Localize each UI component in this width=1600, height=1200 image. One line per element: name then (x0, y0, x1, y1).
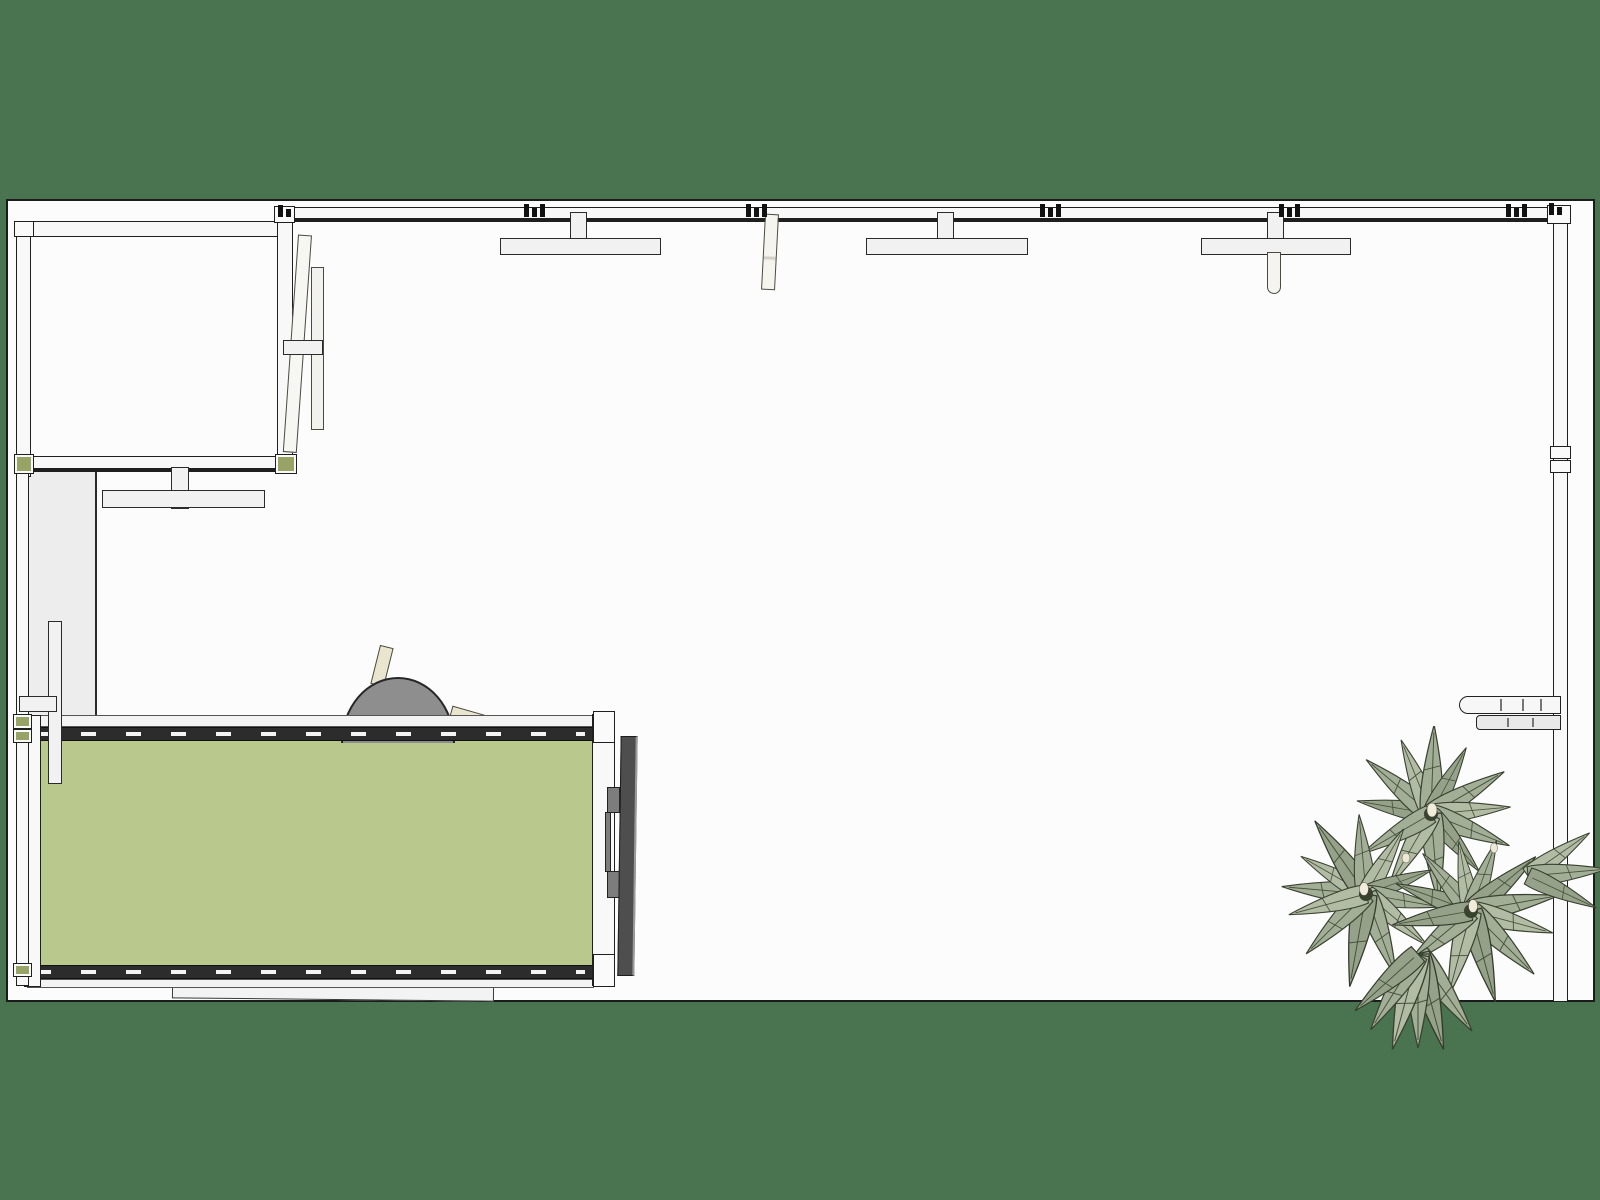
top-wall (277, 207, 1569, 222)
track-hardware-5 (1506, 204, 1532, 217)
corner-block-room-top-left (14, 221, 34, 237)
left-crossbar-fixture (19, 696, 57, 712)
olive-accent (16, 717, 29, 726)
panel-fixture-4-bar (102, 490, 265, 508)
living-wall-corner-block-bottom (593, 954, 615, 987)
corner-block-room-bottom-left (14, 454, 34, 474)
shelf-hatch (1522, 699, 1524, 711)
track-hardware-3 (1040, 204, 1066, 217)
olive-accent (16, 966, 29, 974)
track-hardware-4 (1279, 204, 1305, 217)
living-wall-bottom-rail-cap (27, 979, 594, 988)
agave-plant (1266, 726, 1600, 1050)
olive-accent (16, 732, 29, 740)
track-hardware-2 (746, 204, 772, 217)
living-wall-right-post (592, 714, 615, 986)
corner-block-room-bottom-right (275, 454, 297, 474)
track-dashes (36, 970, 585, 974)
entry-room-left-wall (16, 221, 31, 477)
living-wall-top-track (27, 727, 594, 741)
corridor (29, 472, 97, 718)
track-hardware-corner (1549, 203, 1567, 215)
track-hardware-junction (278, 205, 296, 217)
panel-fixture-2-bar (866, 238, 1028, 255)
shelf-slat-upper (1459, 696, 1561, 714)
shelf-hatch (1540, 699, 1542, 711)
entry-room-bottom-wall (16, 456, 293, 472)
mounted-screen (617, 736, 637, 976)
living-wall-top-rail-cap (27, 715, 594, 727)
living-wall-bottom-track (27, 965, 594, 979)
entry-room-top-wall (16, 221, 292, 237)
track-hardware-1 (524, 204, 550, 217)
left-wall-joint-b (13, 729, 32, 743)
pivot-door-crossbar (283, 340, 323, 355)
panel-fixture-1-bar (500, 238, 661, 255)
olive-accent (17, 457, 31, 471)
screen-bracket-rail (605, 812, 611, 872)
right-wall-joint-lower (1550, 460, 1571, 473)
track-dashes (36, 732, 585, 736)
model-viewport[interactable] (0, 0, 1600, 1200)
living-wall-green-panel (39, 741, 594, 967)
right-wall-joint-upper (1550, 446, 1571, 459)
left-wall-joint-a (13, 714, 32, 729)
open-door-leaf-2 (1267, 252, 1281, 294)
left-wall-joint-c (13, 963, 32, 977)
olive-accent (278, 457, 294, 471)
screen-bracket-upper (607, 787, 620, 813)
shelf-hatch (1500, 699, 1502, 711)
living-wall-corner-block-top (593, 711, 615, 743)
